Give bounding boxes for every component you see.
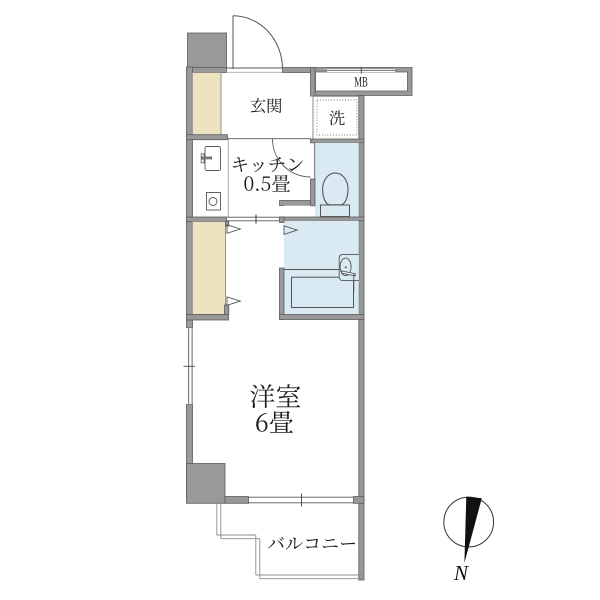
svg-text:N: N <box>453 561 469 585</box>
svg-text:MB: MB <box>354 74 368 90</box>
